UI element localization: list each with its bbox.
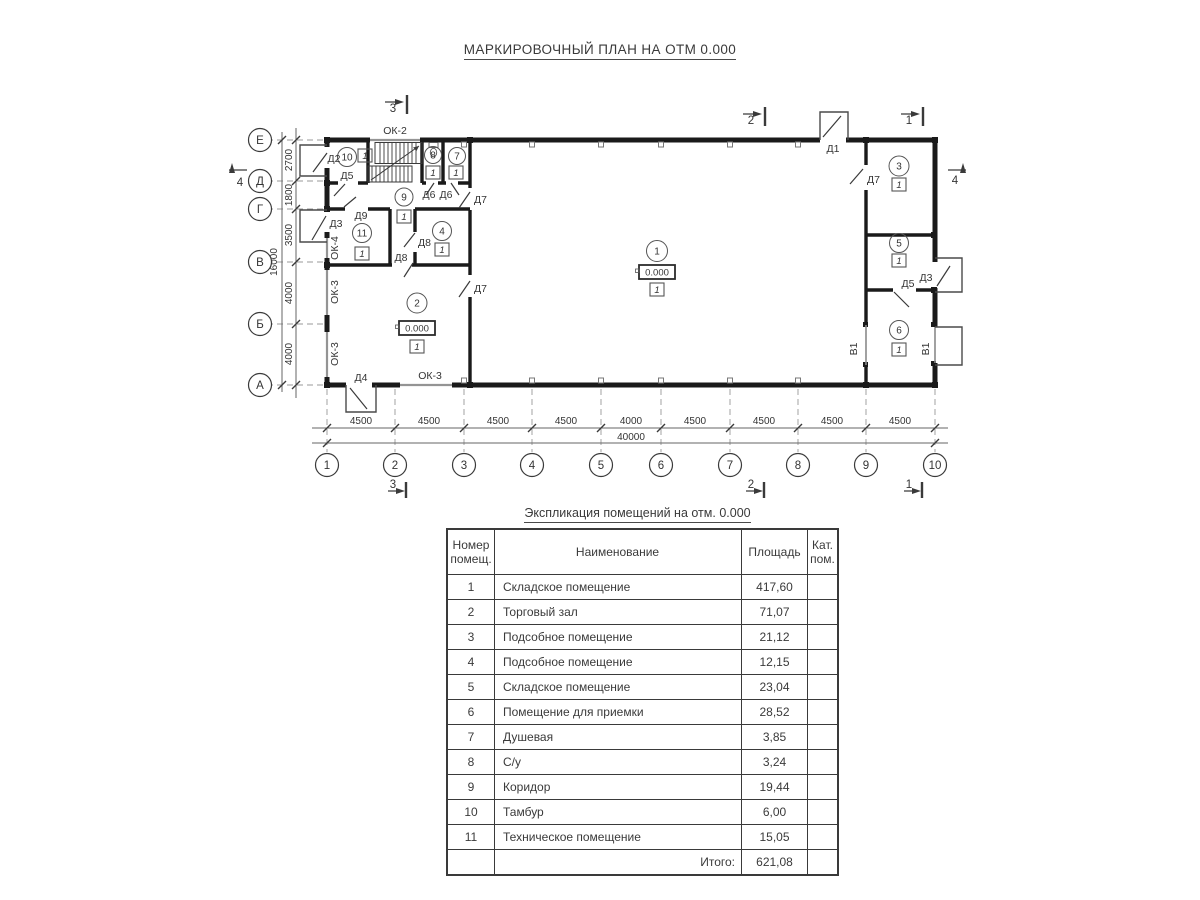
window-label-ok3-left-1: ОК-3 <box>329 280 341 304</box>
door-label-d7-c: Д7 <box>867 174 880 186</box>
elevation-marks: 0.000 0.000 <box>396 265 676 335</box>
window-lines <box>327 140 452 385</box>
door-label-d3-left: Д3 <box>330 218 343 230</box>
axis-8: 8 <box>795 460 801 472</box>
window-label-ok3-left-2: ОК-3 <box>329 342 341 366</box>
door-label-d5-right: Д5 <box>902 278 915 290</box>
door-label-d7-a: Д7 <box>474 194 487 206</box>
table-row: 8С/у3,24 <box>447 750 838 775</box>
dimension-lines <box>282 128 948 443</box>
door-labels: Д1 Д2 Д3 Д3 Д4 Д5 Д5 Д6 Д6 Д7 Д7 Д7 Д8 Д… <box>328 143 933 384</box>
dim-total-40000: 40000 <box>617 432 645 443</box>
door-label-d3-right: Д3 <box>920 272 933 284</box>
room-numbers: 1 2 3 4 5 6 7 8 9 10 11 <box>338 147 910 340</box>
category-badges: 1 1 1 1 1 1 1 1 1 1 1 <box>355 149 906 356</box>
door-label-d8-a: Д8 <box>418 237 431 249</box>
section-1-top: 1 <box>906 115 912 127</box>
room-5: 5 <box>896 239 902 250</box>
page-title: МАРКИРОВОЧНЫЙ ПЛАН НА ОТМ 0.000 <box>0 42 1200 57</box>
cat-badge-8: 1 <box>430 168 435 179</box>
table-row: 3Подсобное помещение21,12 <box>447 625 838 650</box>
elevation-room-1: 0.000 <box>645 268 669 279</box>
room-4: 4 <box>439 227 445 238</box>
cat-badge-2: 1 <box>414 342 419 353</box>
dim-3-4: 4500 <box>487 416 510 427</box>
section-marks: 3 2 1 3 2 1 4 4 <box>229 95 966 498</box>
table-row: 11Техническое помещение15,05 <box>447 825 838 850</box>
door-leaves <box>312 116 950 409</box>
dim-d-g: 1800 <box>284 183 295 206</box>
axis-3: 3 <box>461 460 467 472</box>
dim-v-b: 4000 <box>284 281 295 304</box>
dim-7-8: 4500 <box>753 416 776 427</box>
table-row: 7Душевая3,85 <box>447 725 838 750</box>
section-4-right: 4 <box>952 175 959 187</box>
axis-5: 5 <box>598 460 604 472</box>
axis-G: Г <box>257 204 264 216</box>
section-4-left: 4 <box>237 177 244 189</box>
section-3-top: 3 <box>390 103 396 115</box>
cat-badge-9: 1 <box>401 212 406 223</box>
dim-6-7: 4500 <box>684 416 707 427</box>
extension-lines <box>272 140 935 452</box>
cat-badge-4: 1 <box>439 245 444 256</box>
axis-B: Б <box>256 319 264 331</box>
axis-7: 7 <box>727 460 733 472</box>
cat-badge-5: 1 <box>896 256 901 267</box>
room-7: 7 <box>454 152 460 163</box>
door-label-d9: Д9 <box>355 210 368 222</box>
dim-8-9: 4500 <box>821 416 844 427</box>
room-6: 6 <box>896 326 902 337</box>
schedule-header-row: Номерпомещ. Наименование Площадь Кат.пом… <box>447 529 838 575</box>
total-label: Итого: <box>495 850 742 876</box>
cat-badge-6: 1 <box>896 345 901 356</box>
room-3: 3 <box>896 162 902 173</box>
header-room-number: Номерпомещ. <box>447 529 495 575</box>
window-labels: ОК-2 ОК-3 ОК-4 ОК-3 ОК-3 В1 В1 <box>329 125 932 382</box>
page-title-text: МАРКИРОВОЧНЫЙ ПЛАН НА ОТМ 0.000 <box>464 42 736 60</box>
section-2-top: 2 <box>748 115 754 127</box>
total-value: 621,08 <box>742 850 808 876</box>
window-label-ok4: ОК-4 <box>329 236 341 260</box>
table-row: 9Коридор19,44 <box>447 775 838 800</box>
cat-badge-1: 1 <box>654 285 659 296</box>
cat-badge-7: 1 <box>453 168 458 179</box>
door-label-d7-b: Д7 <box>474 283 487 295</box>
dim-5-6: 4000 <box>620 416 643 427</box>
room-11: 11 <box>357 229 368 240</box>
gate-label-v1-left: В1 <box>848 342 860 355</box>
dim-g-v: 3500 <box>284 223 295 246</box>
door-label-d1: Д1 <box>827 143 840 155</box>
room-9: 9 <box>401 193 407 204</box>
exterior-walls <box>327 140 935 385</box>
table-row: 10Тамбур6,00 <box>447 800 838 825</box>
door-label-d5-left: Д5 <box>341 170 354 182</box>
window-label-ok3-bottom: ОК-3 <box>418 370 442 382</box>
room-schedule: Экспликация помещений на отм. 0.000 Номе… <box>446 506 829 876</box>
staircase <box>368 143 422 183</box>
section-2-bottom: 2 <box>748 479 754 491</box>
header-category: Кат.пом. <box>808 529 839 575</box>
door-label-d4: Д4 <box>355 372 368 384</box>
drawing-sheet: МАРКИРОВОЧНЫЙ ПЛАН НА ОТМ 0.000 4500 450… <box>0 0 1200 900</box>
axis-9: 9 <box>863 460 869 472</box>
dim-total-16000: 16000 <box>269 248 280 276</box>
table-row: 4Подсобное помещение12,15 <box>447 650 838 675</box>
section-1-bottom: 1 <box>906 479 912 491</box>
table-row: 1Складское помещение417,60 <box>447 575 838 600</box>
toilet-fixture <box>429 143 438 157</box>
dimension-ticks <box>278 136 939 447</box>
axis-circles-horizontal: 1 2 3 4 5 6 7 8 9 10 <box>316 454 947 477</box>
table-row: 6Помещение для приемки28,52 <box>447 700 838 725</box>
axis-circles-vertical: Е Д Г В Б А <box>249 129 272 397</box>
entrance-porches <box>300 112 962 412</box>
axis-A: А <box>256 380 264 392</box>
interior-walls <box>327 140 935 385</box>
elevation-room-2: 0.000 <box>405 324 429 335</box>
axis-D: Д <box>256 176 264 188</box>
dim-9-10: 4500 <box>889 416 912 427</box>
room-10: 10 <box>341 153 353 164</box>
vertical-dimensions: 2700 1800 3500 4000 4000 16000 <box>269 148 295 365</box>
door-label-d6-a: Д6 <box>423 189 436 201</box>
dim-2-3: 4500 <box>418 416 441 427</box>
window-label-ok2: ОК-2 <box>383 125 407 137</box>
axis-E: Е <box>256 135 264 147</box>
schedule-title-text: Экспликация помещений на отм. 0.000 <box>524 506 750 523</box>
header-name: Наименование <box>495 529 742 575</box>
table-row: 5Складское помещение23,04 <box>447 675 838 700</box>
door-label-d6-b: Д6 <box>440 189 453 201</box>
axis-4: 4 <box>529 460 536 472</box>
dim-b-a: 4000 <box>284 342 295 365</box>
cat-badge-11: 1 <box>359 249 364 260</box>
dim-1-2: 4500 <box>350 416 373 427</box>
column-markers <box>462 142 801 383</box>
gate-lines <box>866 325 935 365</box>
axis-1: 1 <box>324 460 330 472</box>
wall-junction-pads <box>324 137 938 388</box>
room-1: 1 <box>654 247 660 258</box>
dim-e-d: 2700 <box>284 148 295 171</box>
axis-10: 10 <box>929 460 942 472</box>
axis-2: 2 <box>392 460 398 472</box>
horizontal-dimensions: 4500 4500 4500 4500 4000 4500 4500 4500 … <box>350 416 912 443</box>
gate-label-v1-right: В1 <box>920 342 932 355</box>
axis-V: В <box>256 257 264 269</box>
schedule-title: Экспликация помещений на отм. 0.000 <box>446 506 829 520</box>
axis-6: 6 <box>658 460 664 472</box>
dim-4-5: 4500 <box>555 416 578 427</box>
door-label-d8-b: Д8 <box>395 252 408 264</box>
cat-badge-3: 1 <box>896 180 901 191</box>
section-3-bottom: 3 <box>390 479 396 491</box>
door-label-d2: Д2 <box>328 153 341 165</box>
cat-badge-10: 1 <box>362 151 367 162</box>
schedule-table: Номерпомещ. Наименование Площадь Кат.пом… <box>446 528 839 876</box>
header-area: Площадь <box>742 529 808 575</box>
schedule-total-row: Итого: 621,08 <box>447 850 838 876</box>
room-8: 8 <box>430 151 436 162</box>
room-2: 2 <box>414 299 420 310</box>
table-row: 2Торговый зал71,07 <box>447 600 838 625</box>
